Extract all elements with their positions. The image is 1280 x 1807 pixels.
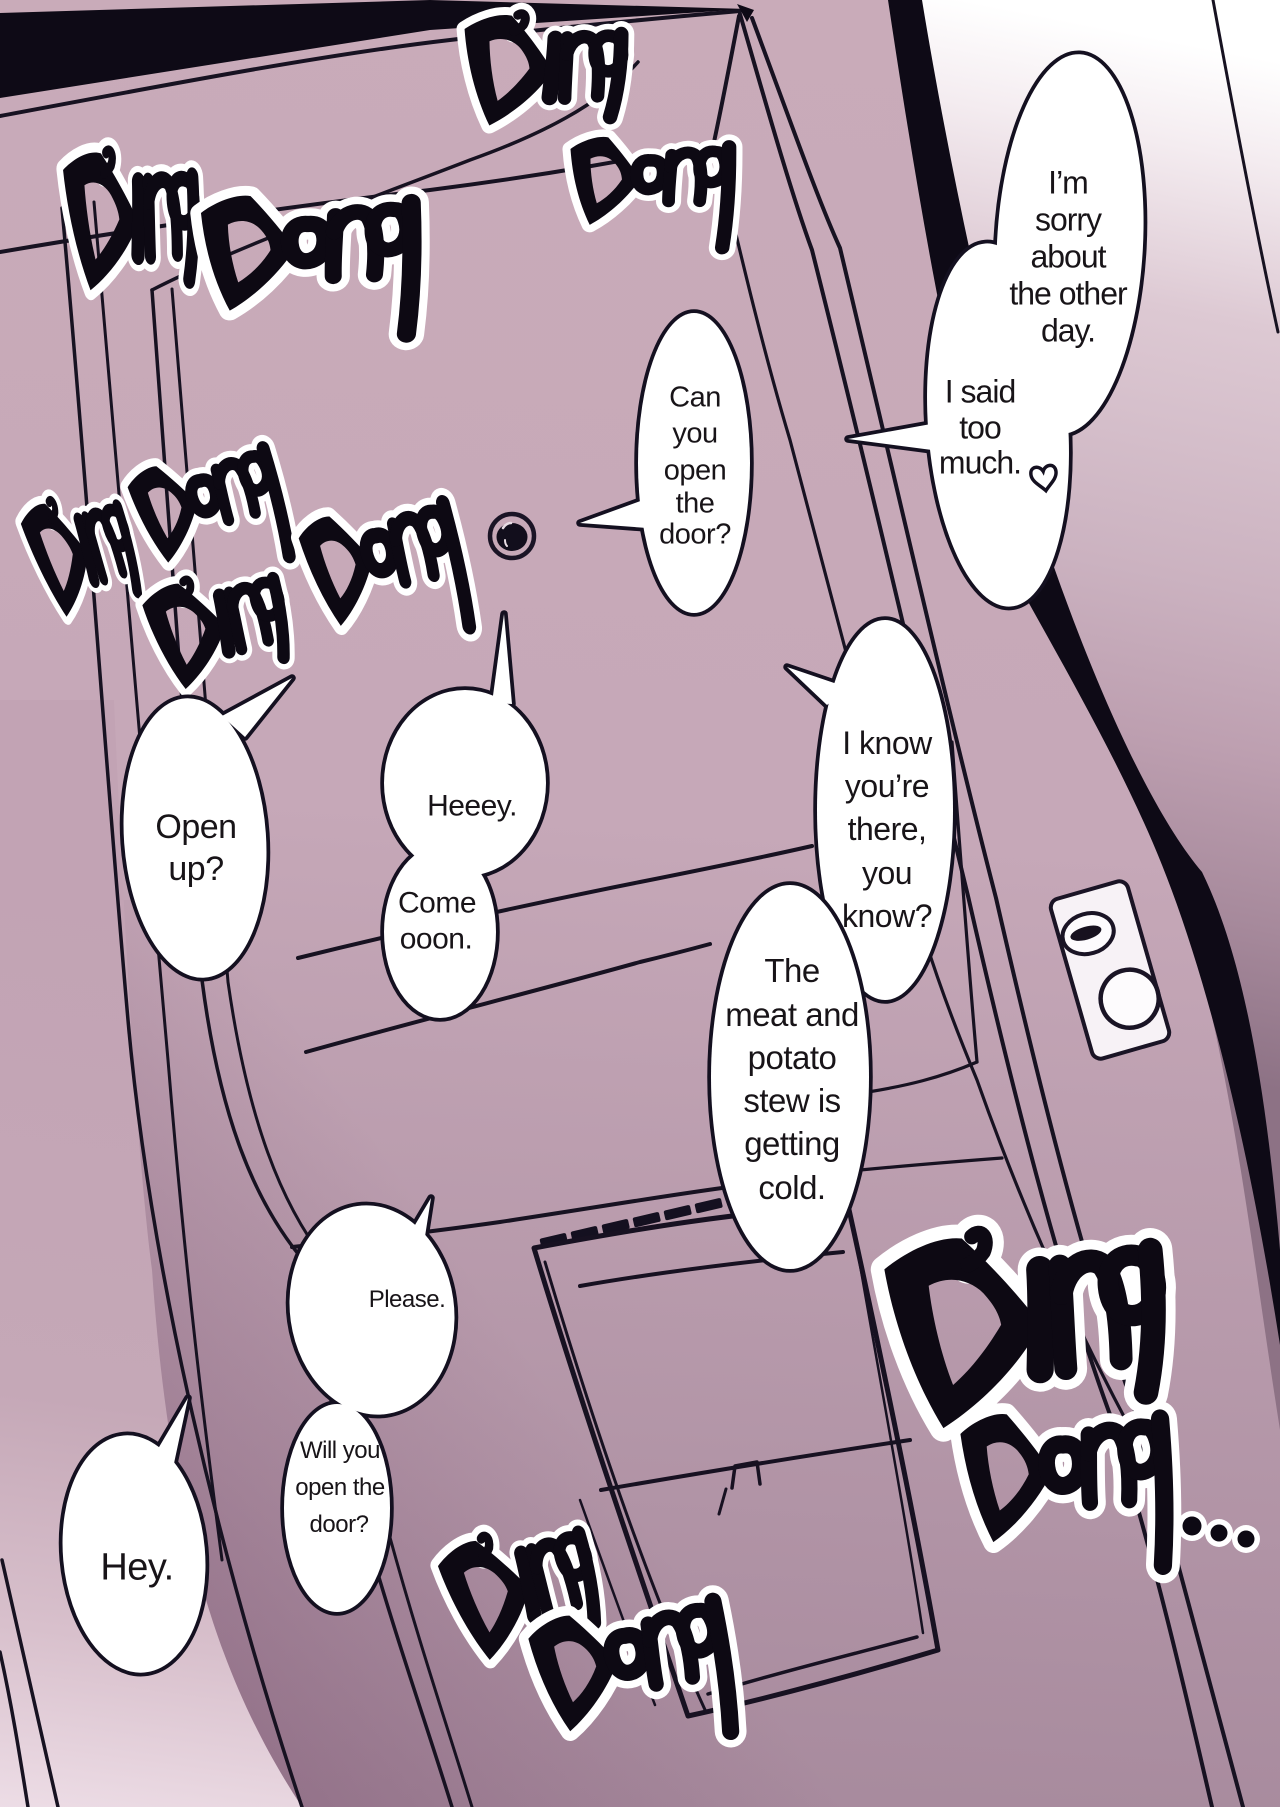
svg-text:I know: I know xyxy=(842,725,933,761)
svg-text:you: you xyxy=(672,418,717,450)
svg-text:day.: day. xyxy=(1041,313,1095,349)
svg-text:about: about xyxy=(1030,239,1106,275)
svg-text:you’re: you’re xyxy=(845,768,929,804)
svg-text:open the: open the xyxy=(295,1474,385,1501)
svg-text:Open: Open xyxy=(155,808,236,846)
svg-text:there,: there, xyxy=(848,811,927,847)
svg-text:getting: getting xyxy=(744,1125,840,1162)
svg-text:much.: much. xyxy=(939,445,1021,481)
svg-text:Heeey.: Heeey. xyxy=(427,790,517,823)
svg-text:Hey.: Hey. xyxy=(100,1546,173,1588)
svg-text:The: The xyxy=(764,952,819,989)
svg-text:door?: door? xyxy=(310,1511,369,1538)
svg-text:the: the xyxy=(676,488,715,520)
svg-text:Please.: Please. xyxy=(369,1286,446,1313)
svg-text:Can: Can xyxy=(669,382,721,414)
svg-text:Will you: Will you xyxy=(300,1437,380,1464)
svg-text:meat and: meat and xyxy=(725,996,859,1033)
svg-text:cold.: cold. xyxy=(758,1169,825,1206)
svg-text:I said: I said xyxy=(945,374,1015,410)
svg-text:too: too xyxy=(959,410,1001,446)
svg-text:know?: know? xyxy=(842,898,932,934)
svg-text:open: open xyxy=(664,455,727,487)
svg-text:Come: Come xyxy=(398,887,476,920)
svg-text:sorry: sorry xyxy=(1035,202,1102,238)
svg-text:you: you xyxy=(862,855,912,891)
svg-text:door?: door? xyxy=(659,519,731,551)
svg-text:up?: up? xyxy=(168,850,223,888)
svg-text:stew is: stew is xyxy=(743,1082,840,1119)
svg-text:potato: potato xyxy=(748,1039,837,1076)
svg-text:ooon.: ooon. xyxy=(400,923,473,956)
svg-text:I’m: I’m xyxy=(1048,165,1088,201)
svg-text:the other: the other xyxy=(1009,276,1128,312)
